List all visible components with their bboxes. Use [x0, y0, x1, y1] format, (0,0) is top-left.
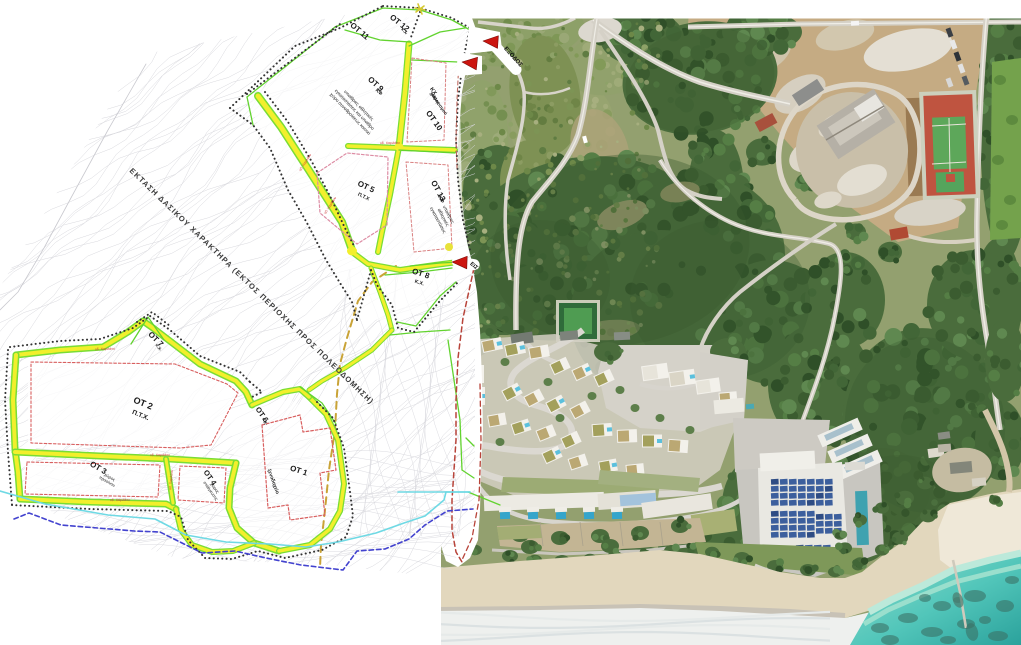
svg-text:οδ. Χαριλάου: οδ. Χαριλάου	[380, 141, 400, 145]
svg-text:οδ. Χαριλάου: οδ. Χαριλάου	[95, 347, 115, 352]
svg-text:οδ. Χαριλάου: οδ. Χαριλάου	[110, 498, 130, 502]
svg-text:οδ. Χαριλάου: οδ. Χαριλάου	[150, 453, 170, 457]
